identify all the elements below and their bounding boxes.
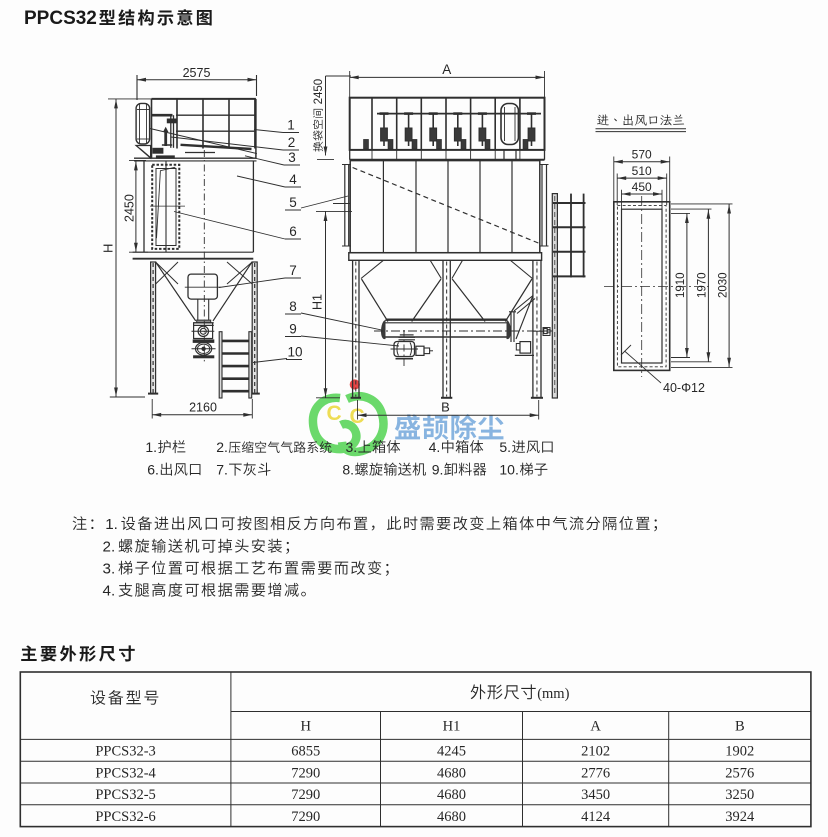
svg-text:7: 7 bbox=[289, 263, 297, 278]
svg-text:7290: 7290 bbox=[291, 809, 320, 825]
svg-text:7290: 7290 bbox=[291, 787, 320, 803]
svg-text:7290: 7290 bbox=[291, 765, 320, 781]
svg-text:2576: 2576 bbox=[725, 765, 754, 781]
svg-text:8: 8 bbox=[289, 299, 297, 314]
svg-text:2450: 2450 bbox=[313, 79, 325, 108]
svg-text:(mm): (mm) bbox=[537, 686, 569, 702]
svg-text:4.: 4. bbox=[429, 439, 441, 455]
svg-text:1.: 1. bbox=[105, 516, 118, 533]
svg-text:3: 3 bbox=[288, 150, 296, 165]
svg-text:4680: 4680 bbox=[437, 809, 466, 825]
svg-text:2102: 2102 bbox=[581, 744, 610, 760]
svg-text:A: A bbox=[590, 719, 601, 735]
svg-text:6.: 6. bbox=[147, 462, 159, 478]
svg-text:3924: 3924 bbox=[725, 809, 755, 825]
svg-text:PPCS32-3: PPCS32-3 bbox=[95, 744, 155, 760]
svg-text:3.: 3. bbox=[346, 439, 358, 455]
svg-text:PPCS32-6: PPCS32-6 bbox=[95, 809, 155, 825]
svg-text:4245: 4245 bbox=[437, 744, 466, 760]
svg-text:1910: 1910 bbox=[675, 272, 687, 298]
svg-text:4.: 4. bbox=[103, 583, 116, 600]
svg-text:570: 570 bbox=[632, 148, 652, 162]
svg-text:2450: 2450 bbox=[123, 194, 137, 222]
svg-text:2776: 2776 bbox=[581, 765, 610, 781]
svg-text:5.: 5. bbox=[499, 439, 511, 455]
svg-text:A: A bbox=[442, 62, 451, 77]
svg-text:3250: 3250 bbox=[725, 787, 754, 803]
svg-text:10.: 10. bbox=[499, 462, 518, 478]
svg-text:2.: 2. bbox=[103, 539, 116, 556]
svg-text:40-Φ12: 40-Φ12 bbox=[663, 381, 705, 395]
svg-text:B: B bbox=[441, 400, 450, 415]
svg-text:2030: 2030 bbox=[718, 272, 730, 298]
svg-text:4680: 4680 bbox=[437, 787, 466, 803]
svg-text:PPCS32: PPCS32 bbox=[24, 8, 97, 29]
svg-text:6855: 6855 bbox=[291, 744, 320, 760]
svg-text:6: 6 bbox=[289, 224, 297, 239]
svg-text:1902: 1902 bbox=[725, 744, 754, 760]
svg-text:B: B bbox=[735, 719, 745, 735]
svg-text:450: 450 bbox=[632, 180, 652, 194]
svg-text:H: H bbox=[300, 719, 311, 735]
svg-text:4680: 4680 bbox=[437, 765, 466, 781]
svg-text:1970: 1970 bbox=[697, 272, 709, 298]
svg-text:PPCS32-5: PPCS32-5 bbox=[95, 787, 155, 803]
svg-text:2: 2 bbox=[288, 135, 296, 150]
svg-text:2575: 2575 bbox=[183, 66, 211, 80]
svg-text:4124: 4124 bbox=[581, 809, 611, 825]
svg-text:10: 10 bbox=[287, 345, 302, 360]
svg-text:8.: 8. bbox=[342, 462, 354, 478]
svg-text:1: 1 bbox=[287, 118, 295, 133]
svg-text:1.: 1. bbox=[145, 439, 157, 455]
svg-text:5: 5 bbox=[289, 195, 297, 210]
svg-text:PPCS32-4: PPCS32-4 bbox=[95, 765, 156, 781]
svg-text:H1: H1 bbox=[311, 294, 325, 310]
svg-text:4: 4 bbox=[289, 172, 297, 187]
svg-text:9.: 9. bbox=[432, 462, 444, 478]
svg-text:3450: 3450 bbox=[581, 787, 610, 803]
svg-text:3.: 3. bbox=[103, 561, 116, 578]
svg-text:510: 510 bbox=[632, 164, 652, 178]
svg-text:2160: 2160 bbox=[189, 401, 217, 415]
svg-text:H1: H1 bbox=[443, 719, 461, 735]
svg-text:C: C bbox=[327, 402, 342, 425]
svg-text:H: H bbox=[101, 244, 116, 253]
svg-text:9: 9 bbox=[289, 322, 297, 337]
svg-text:2.: 2. bbox=[216, 439, 228, 455]
svg-text:7.: 7. bbox=[216, 462, 228, 478]
